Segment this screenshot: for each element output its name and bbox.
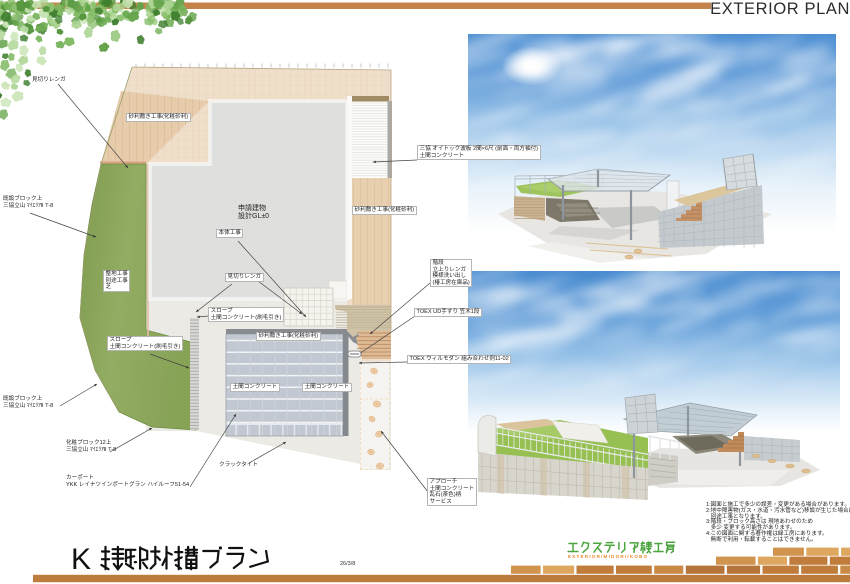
svg-text:26/3/8: 26/3/8	[340, 561, 355, 567]
svg-text:K: K	[71, 543, 91, 576]
